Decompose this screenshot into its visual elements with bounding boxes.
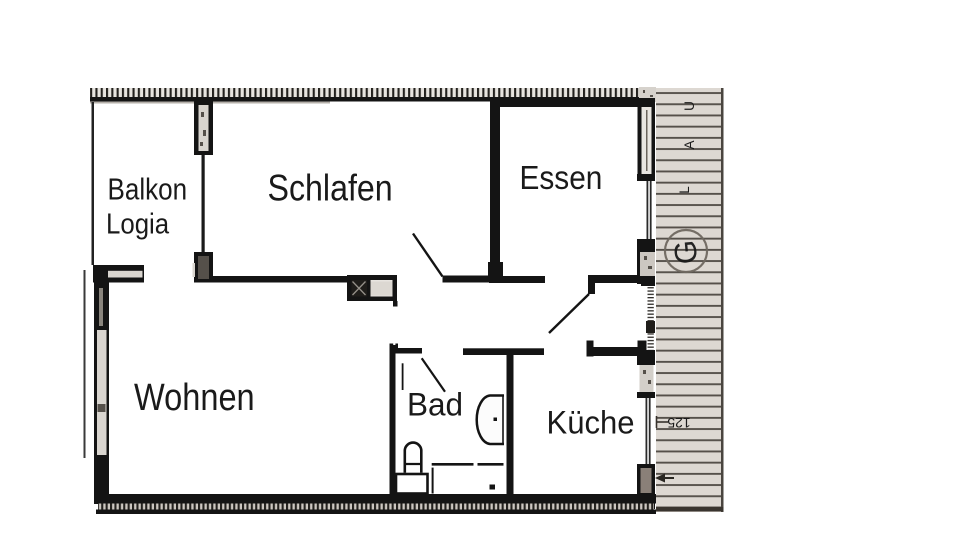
svg-text:L: L: [677, 186, 692, 194]
svg-text:Schlafen: Schlafen: [268, 168, 393, 209]
svg-text:A: A: [682, 140, 697, 149]
svg-text:Bad: Bad: [407, 386, 463, 423]
svg-text:Essen: Essen: [520, 158, 603, 196]
svg-text:U: U: [682, 101, 697, 111]
svg-text:Wohnen: Wohnen: [134, 377, 255, 419]
svg-text:Küche: Küche: [547, 404, 635, 441]
svg-text:Balkon: Balkon: [108, 172, 188, 207]
svg-text:G: G: [667, 239, 704, 266]
svg-text:125: 125: [667, 415, 691, 431]
svg-text:Logia: Logia: [106, 207, 170, 240]
